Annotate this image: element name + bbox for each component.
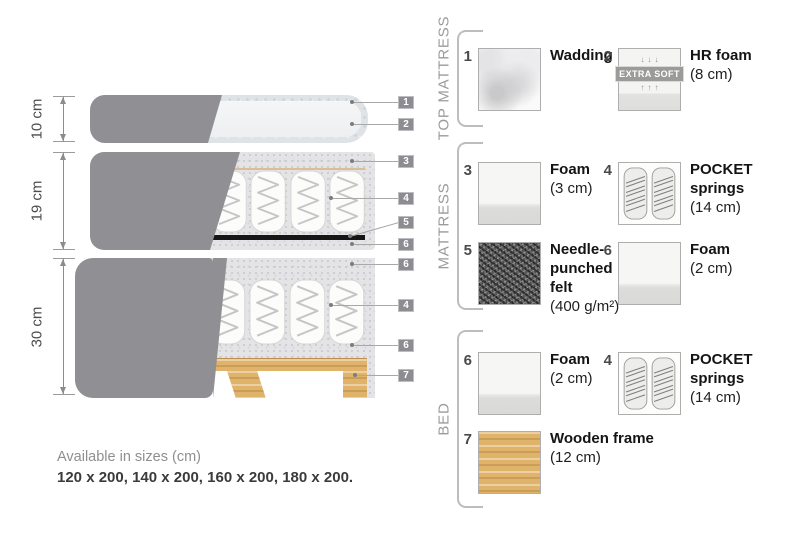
wadding-swatch [478,48,541,111]
wooden-frame-swatch [478,431,541,494]
extra-soft-badge: EXTRA SOFT [615,66,684,82]
leader-dot [350,343,354,347]
legend-item-pocket-springs-bed: 4 POCKET springs (14 cm) [598,352,800,418]
hr-foam-swatch: ↓↓↓ EXTRA SOFT ↑↑↑ [618,48,681,111]
foam-swatch [478,352,541,415]
callout-tag-6: 6 [398,238,414,251]
arrows-up-icon: ↑↑↑ [638,84,662,92]
leader-dot [329,303,333,307]
legend-item-size: (8 cm) [690,65,800,84]
sizes-note-title: Available in sizes (cm) [57,449,201,465]
dimension-mattress: 19 cm [53,152,75,250]
callout-tag-7: 7 [398,369,414,382]
callout-tag-6c: 6 [398,339,414,352]
spring-pocket-icon [651,167,676,220]
leader-line [354,124,398,125]
dimension-label: 19 cm [29,181,46,222]
legend-item-title: POCKET springs [690,160,800,198]
legend-item-title: Wooden frame [550,429,710,448]
tick-line [53,249,75,250]
callout-tag-4b: 4 [398,299,414,312]
fabric-cover-edge [208,95,222,143]
legend-item-number: 7 [458,431,472,448]
callout-tag-4: 4 [398,192,414,205]
arrows-down-icon: ↓↓↓ [638,56,662,64]
spring-pocket-icon [250,170,286,233]
spring-pocket-icon [623,167,648,220]
leader-dot [350,100,354,104]
legend-item-title: Foam [690,240,800,259]
leader-line [354,345,398,346]
spring-pocket-icon [249,279,286,345]
leader-line [354,161,398,162]
group-label-bed: BED [436,402,453,435]
foam-swatch [618,242,681,305]
legend-item-number: 6 [458,352,472,369]
leader-dot [329,196,333,200]
legend-item-size: (2 cm) [690,259,800,278]
callout-tag-5: 5 [398,216,414,229]
leader-line [354,102,398,103]
group-label-top-mattress: TOP MATTRESS [436,16,453,141]
dimension-top-mattress: 10 cm [53,96,75,142]
legend-item-hr-foam: 2 ↓↓↓ EXTRA SOFT ↑↑↑ HR foam (8 cm) [598,48,800,114]
leader-dot [350,122,354,126]
dimension-label: 10 cm [29,99,46,140]
double-arrow-icon [63,97,64,141]
legend-item-number: 2 [598,48,612,65]
callout-tag-2: 2 [398,118,414,131]
bed-graphic [205,258,375,398]
legend-item-title: POCKET springs [690,350,800,388]
leader-line [354,244,398,245]
legend-item-title: HR foam [690,46,800,65]
legend-item-size: (14 cm) [690,198,800,217]
callout-tag-6b: 6 [398,258,414,271]
leader-dot [353,373,357,377]
leader-line [333,198,398,199]
pocket-springs-swatch [618,162,681,225]
legend-item-foam-2: 6 Foam (2 cm) [598,242,800,308]
dimension-bed: 30 cm [53,258,75,395]
legend-item-size: (12 cm) [550,448,710,467]
spring-pocket-icon [329,170,365,233]
spring-pocket-icon [328,279,365,345]
pocket-springs-swatch [618,352,681,415]
spring-pocket-icon [290,170,326,233]
leader-dot [350,159,354,163]
fabric-cover-edge [210,152,240,250]
sizes-note-values: 120 x 200, 140 x 200, 160 x 200, 180 x 2… [57,469,353,486]
needle-felt-swatch [478,242,541,305]
legend-item-wooden-frame: 7 Wooden frame (12 cm) [458,431,668,497]
group-label-mattress: MATTRESS [436,183,453,270]
leader-dot [350,242,354,246]
mattress-infographic: 10 cm 19 cm 30 cm [0,0,800,533]
leader-dot [350,262,354,266]
fabric-cover [90,152,210,250]
foam-swatch [478,162,541,225]
leader-line [357,375,398,376]
pocket-springs-row [209,279,365,345]
tick-line [53,394,75,395]
legend-item-pocket-springs: 4 POCKET springs (14 cm) [598,162,800,228]
legend-item-number: 6 [598,242,612,259]
legend-item-number: 4 [598,352,612,369]
leader-line [354,264,398,265]
leader-dot [348,234,352,238]
leader-line [333,305,398,306]
double-arrow-icon [63,259,64,394]
fabric-cover-edge [213,258,227,398]
callout-tag-3: 3 [398,155,414,168]
spring-pocket-icon [651,357,676,410]
legend-item-number: 3 [458,162,472,179]
legend-item-number: 1 [458,48,472,65]
legend-item-number: 4 [598,162,612,179]
legend-item-size: (14 cm) [690,388,800,407]
tick-line [53,141,75,142]
top-mattress-graphic [90,95,368,143]
double-arrow-icon [63,153,64,249]
spring-pocket-icon [623,357,648,410]
legend-item-number: 5 [458,242,472,259]
fabric-cover [75,258,213,398]
dimension-label: 30 cm [29,306,46,347]
fabric-cover [90,95,208,143]
spring-pocket-icon [289,279,326,345]
callout-tag-1: 1 [398,96,414,109]
